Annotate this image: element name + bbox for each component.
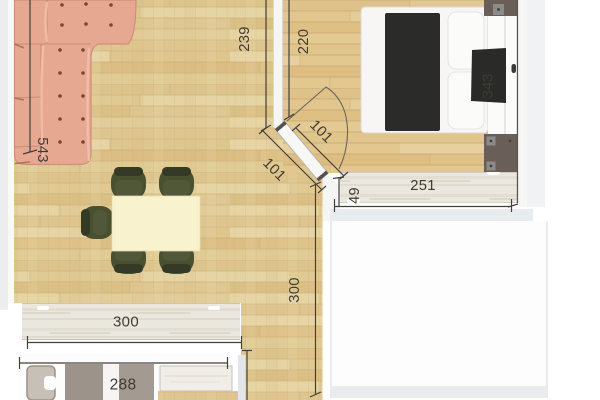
- svg-text:288: 288: [110, 377, 137, 394]
- svg-text:220: 220: [296, 29, 312, 55]
- svg-text:300: 300: [287, 277, 303, 303]
- svg-text:343: 343: [480, 73, 497, 98]
- svg-text:239: 239: [237, 26, 253, 52]
- svg-text:251: 251: [410, 178, 436, 194]
- svg-text:300: 300: [113, 314, 139, 331]
- svg-text:543: 543: [34, 137, 50, 163]
- svg-text:49: 49: [347, 187, 363, 204]
